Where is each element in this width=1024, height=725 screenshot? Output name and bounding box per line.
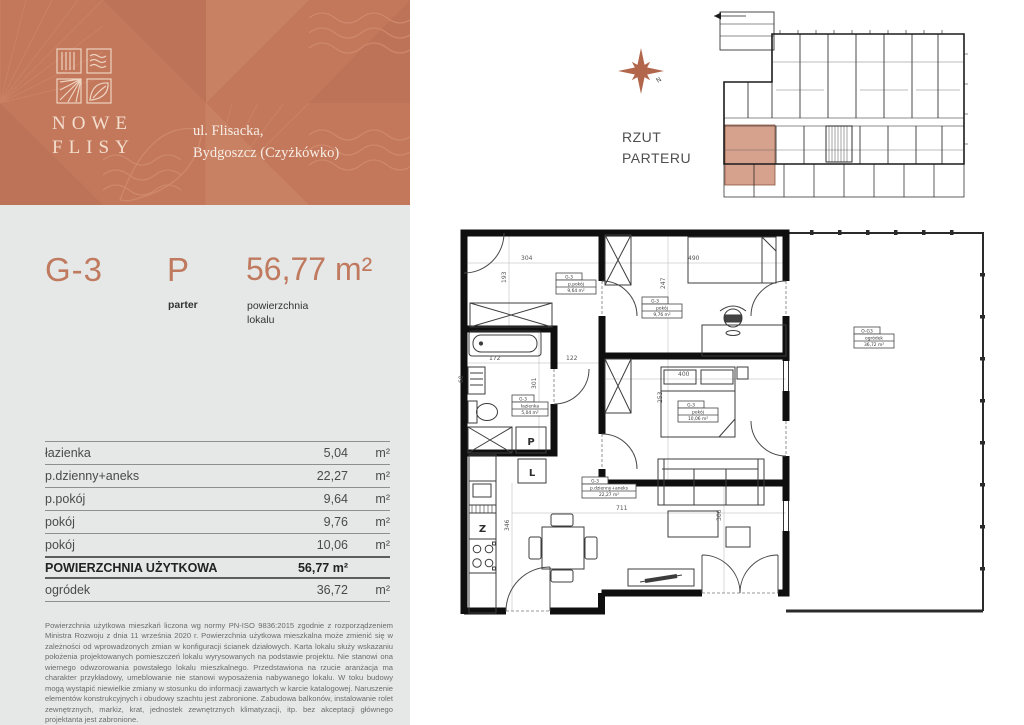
dim-text: 711 — [616, 505, 628, 512]
dim-text: 193 — [501, 271, 508, 283]
site-title-line2: PARTERU — [622, 148, 691, 169]
dim-text: 306 — [716, 509, 723, 521]
room-area-value: 10,06 — [276, 538, 348, 552]
dim-text: 247 — [660, 277, 667, 289]
svg-text:22,27 m²: 22,27 m² — [599, 492, 619, 498]
property-card-page: NOWE FLISY ul. Flisacka, Bydgoszcz (Czyż… — [0, 0, 1024, 725]
floor-plan-drawing: P L Z 304 490 193 247 172 122 301 60 400… — [456, 221, 1024, 633]
room-area-value: 22,27 — [276, 469, 348, 483]
tv-stand-icon — [628, 569, 694, 586]
dim-text: 253 — [657, 391, 664, 403]
room-area-unit: m² — [348, 446, 390, 460]
table-row: pokój 9,76 m² — [45, 510, 390, 533]
room-area-unit: m² — [348, 515, 390, 529]
compass-icon: N — [616, 46, 670, 100]
svg-text:36,72 m²: 36,72 m² — [864, 342, 884, 348]
svg-text:G-3: G-3 — [519, 397, 527, 403]
shower-cabinet-icon — [468, 427, 512, 453]
dim-text: 172 — [489, 355, 501, 362]
arrow-icon — [714, 13, 721, 20]
walls — [464, 230, 790, 615]
room-area-value: 36,72 — [276, 583, 348, 597]
washbasin-icon — [468, 367, 485, 394]
brand-name-line2: FLISY — [52, 136, 135, 160]
svg-text:G-3: G-3 — [687, 403, 695, 409]
svg-text:G-3: G-3 — [565, 275, 573, 281]
svg-text:pokój: pokój — [656, 304, 668, 311]
unit-area-label: powierzchnia lokalu — [247, 299, 308, 327]
address-line1: ul. Flisacka, — [193, 121, 339, 143]
room-area-unit: m² — [348, 583, 390, 597]
svg-text:O-G3: O-G3 — [861, 329, 873, 335]
stair-core — [826, 126, 852, 162]
svg-text:łazienka: łazienka — [521, 403, 539, 409]
room-name: pokój — [45, 538, 276, 552]
wardrobe-icon — [605, 235, 631, 285]
table-row: p.dzienny+aneks 22,27 m² — [45, 464, 390, 487]
site-title-line1: RZUT — [622, 127, 691, 148]
wardrobe-icon — [605, 359, 631, 413]
room-name: p.pokój — [45, 492, 276, 506]
room-area-unit: m² — [348, 492, 390, 506]
table-row: pokój 10,06 m² — [45, 533, 390, 556]
fridge-letter: L — [529, 468, 536, 479]
unit-area: 56,77 m² — [246, 251, 372, 288]
table-row-garden: ogródek 36,72 m² — [45, 579, 390, 602]
svg-text:pokój: pokój — [692, 408, 704, 415]
single-bed-icon — [688, 237, 776, 283]
room-label-pokoj1: G-3 pokój 9,76 m² — [642, 297, 682, 318]
room-area-value: 5,04 — [276, 446, 348, 460]
toilet-icon — [468, 401, 498, 423]
dim-text: 301 — [531, 377, 538, 389]
room-areas-table: łazienka 5,04 m² p.dzienny+aneks 22,27 m… — [45, 441, 390, 602]
dim-text: 490 — [688, 255, 700, 262]
svg-text:ogródek: ogródek — [865, 334, 883, 341]
room-label-lazienka: G-3 łazienka 5,04 m² — [512, 395, 548, 416]
dining-table-icon — [529, 514, 597, 582]
total-label: POWIERZCHNIA UŻYTKOWA — [45, 561, 276, 575]
room-area-value: 9,76 — [276, 515, 348, 529]
dishwasher-letter: Z — [479, 524, 486, 535]
svg-text:G-3: G-3 — [591, 479, 599, 485]
svg-text:9,76 m²: 9,76 m² — [653, 312, 670, 318]
room-name: p.dzienny+aneks — [45, 469, 276, 483]
room-area-unit: m² — [348, 469, 390, 483]
left-panel: NOWE FLISY ul. Flisacka, Bydgoszcz (Czyż… — [0, 0, 410, 725]
floor-code: P — [167, 251, 189, 289]
brand-name-line1: NOWE — [52, 112, 135, 136]
room-name: pokój — [45, 515, 276, 529]
dimension-lines — [468, 233, 786, 611]
bathtub-icon — [469, 331, 541, 356]
pouf-icon — [726, 527, 750, 547]
wardrobe-icon — [470, 303, 552, 327]
double-bed-icon — [661, 367, 748, 437]
area-label-line1: powierzchnia — [247, 299, 308, 313]
room-name: łazienka — [45, 446, 276, 460]
door-arcs — [464, 233, 786, 611]
unit-code: G-3 — [45, 251, 103, 289]
project-address: ul. Flisacka, Bydgoszcz (Czyżkówko) — [193, 121, 339, 165]
room-label-ppokoj: G-3 p.pokój 9,64 m² — [556, 273, 596, 294]
building-overview-plan — [710, 0, 1015, 208]
dim-text: 400 — [678, 371, 690, 378]
room-area-unit: m² — [348, 538, 390, 552]
legal-disclaimer: Powierzchnia użytkowa mieszkań liczona w… — [45, 621, 393, 725]
compass-north-label: N — [655, 75, 664, 84]
address-line2: Bydgoszcz (Czyżkówko) — [193, 143, 339, 165]
garden-label: O-G3 ogródek 36,72 m² — [854, 327, 894, 348]
room-labels: G-3 p.pokój 9,64 m² G-3 pokój 9,76 m² G-… — [512, 273, 894, 498]
dim-text: 346 — [504, 519, 511, 531]
room-name: ogródek — [45, 583, 276, 597]
coffee-table-icon — [668, 511, 718, 537]
dim-text: 304 — [521, 255, 533, 262]
washer-letter: P — [527, 437, 534, 448]
highlighted-unit — [725, 125, 775, 185]
floor-label: parter — [168, 299, 198, 311]
svg-text:p.dzienny+aneks: p.dzienny+aneks — [590, 485, 629, 491]
window-ticks — [780, 30, 968, 144]
terrace-outline — [714, 12, 774, 50]
svg-text:p.pokój: p.pokój — [568, 280, 584, 287]
brand-name: NOWE FLISY — [52, 112, 135, 160]
garden-boundary — [786, 230, 985, 611]
dim-text: 122 — [566, 355, 578, 362]
room-label-pokoj2: G-3 pokój 10,06 m² — [678, 401, 718, 422]
dim-text: 60 — [458, 375, 465, 383]
area-label-line2: lokalu — [247, 313, 308, 327]
stove-icon — [473, 542, 496, 570]
site-plan-title: RZUT PARTERU — [622, 127, 691, 169]
svg-text:G-3: G-3 — [651, 299, 659, 305]
table-row-total: POWIERZCHNIA UŻYTKOWA 56,77 m² — [45, 556, 390, 579]
svg-text:10,06 m²: 10,06 m² — [688, 416, 708, 422]
desk-icon — [702, 306, 786, 356]
table-row: łazienka 5,04 m² — [45, 441, 390, 464]
brand-header: NOWE FLISY ul. Flisacka, Bydgoszcz (Czyż… — [0, 0, 410, 205]
svg-text:5,04 m²: 5,04 m² — [521, 410, 538, 416]
brand-logo-icon — [56, 48, 112, 104]
table-row: p.pokój 9,64 m² — [45, 487, 390, 510]
svg-text:9,64 m²: 9,64 m² — [567, 288, 584, 294]
room-area-value: 9,64 — [276, 492, 348, 506]
total-value: 56,77 m² — [276, 561, 348, 575]
